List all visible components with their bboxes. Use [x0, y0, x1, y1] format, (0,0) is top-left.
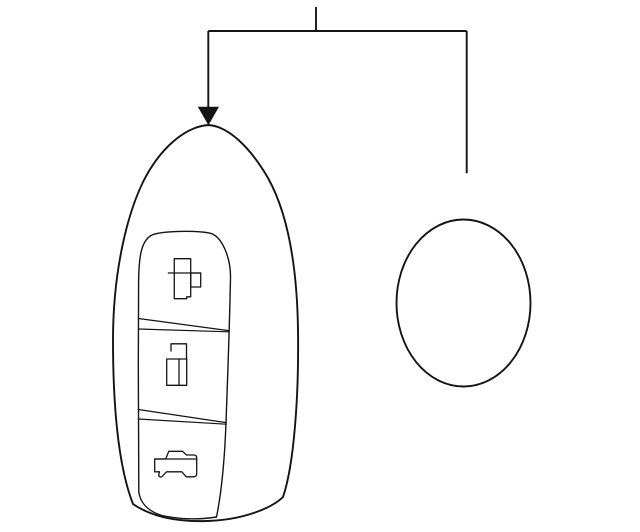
- parts-diagram-canvas: [0, 0, 640, 532]
- parts-diagram: [0, 0, 640, 532]
- diagram-background: [0, 0, 640, 532]
